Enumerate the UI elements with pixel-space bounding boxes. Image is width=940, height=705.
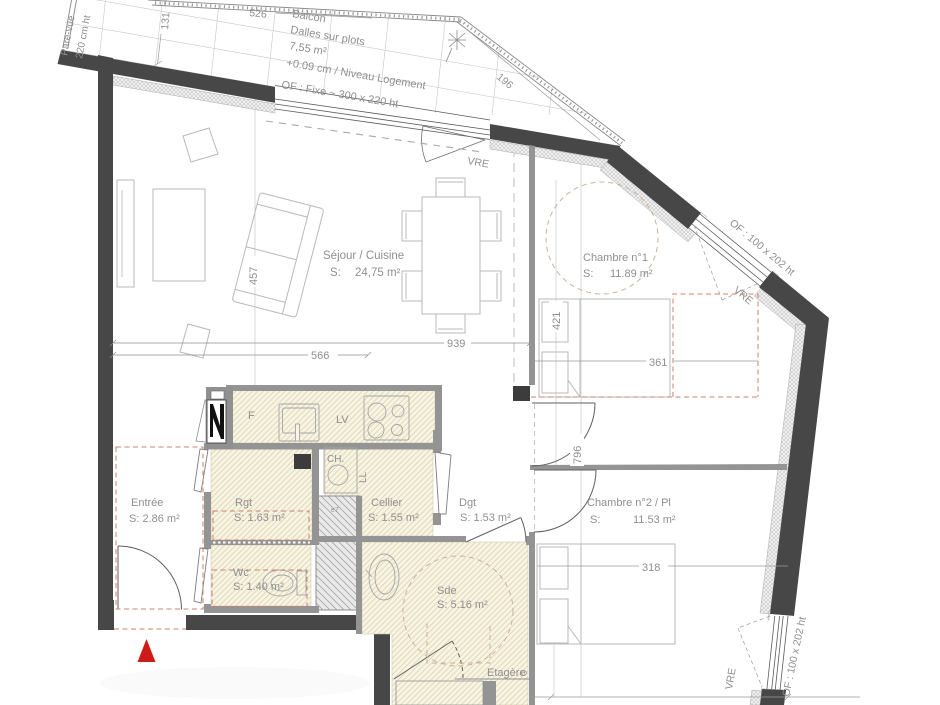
svg-text:Cellier: Cellier: [371, 497, 403, 509]
svg-text:e7: e7: [331, 507, 339, 514]
svg-text:24,75 m²: 24,75 m²: [355, 267, 401, 279]
svg-text:Dgt: Dgt: [459, 497, 476, 509]
svg-text:796: 796: [572, 446, 584, 464]
svg-text:457: 457: [248, 267, 260, 285]
svg-text:Chambre n°2 / Pl: Chambre n°2 / Pl: [587, 497, 671, 509]
svg-text:566: 566: [311, 350, 329, 362]
svg-text:S: 1.63 m²: S: 1.63 m²: [234, 512, 285, 524]
svg-text:S: 1.40 m²: S: 1.40 m²: [233, 581, 284, 593]
svg-text:Entrée: Entrée: [131, 497, 163, 509]
svg-text:131: 131: [159, 12, 172, 31]
svg-text:S: 1.53 m²: S: 1.53 m²: [460, 512, 511, 524]
svg-text:939: 939: [447, 338, 465, 350]
svg-text:11.89 m²: 11.89 m²: [610, 268, 653, 280]
svg-text:11.53 m²: 11.53 m²: [633, 514, 676, 526]
svg-text:S: 2.86 m²: S: 2.86 m²: [129, 513, 180, 525]
svg-text:S: 1.55 m²: S: 1.55 m²: [368, 512, 419, 524]
svg-text:421: 421: [551, 312, 563, 330]
svg-text:Sde: Sde: [437, 585, 457, 597]
svg-text:S:: S:: [590, 514, 600, 526]
svg-text:LV: LV: [336, 414, 349, 426]
svg-text:Wc: Wc: [233, 567, 249, 579]
svg-text:S:: S:: [583, 268, 593, 280]
svg-text:S:: S:: [330, 267, 341, 279]
svg-text:361: 361: [649, 357, 667, 369]
svg-text:F: F: [248, 410, 255, 422]
svg-text:Séjour / Cuisine: Séjour / Cuisine: [323, 250, 404, 262]
svg-text:Etagère: Etagère: [487, 667, 526, 679]
svg-text:CH.: CH.: [327, 454, 344, 465]
svg-text:526: 526: [249, 7, 268, 21]
svg-text:Rgt: Rgt: [235, 497, 252, 509]
svg-text:Chambre n°1: Chambre n°1: [583, 252, 648, 264]
svg-text:S: 5.16 m²: S: 5.16 m²: [437, 599, 488, 611]
svg-text:LL: LL: [358, 471, 369, 483]
svg-text:318: 318: [642, 562, 660, 574]
